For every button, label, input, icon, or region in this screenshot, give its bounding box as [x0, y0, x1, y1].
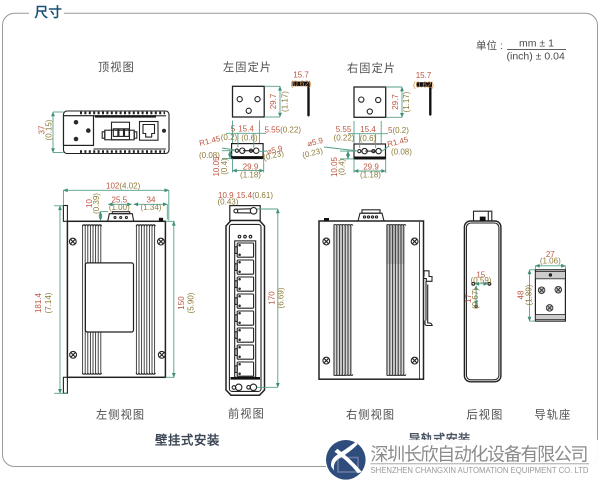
svg-text:右侧视图: 右侧视图 — [346, 408, 395, 422]
svg-text:R1.45: R1.45 — [198, 134, 221, 148]
svg-text:左侧视图: 左侧视图 — [96, 408, 145, 422]
svg-text:(0.22): (0.22) — [334, 133, 355, 142]
svg-text:左固定片: 左固定片 — [223, 60, 272, 74]
svg-text:深圳长欣自动化设备有限公司: 深圳长欣自动化设备有限公司 — [371, 445, 589, 465]
svg-text:(0.23): (0.23) — [301, 146, 324, 160]
svg-text:(1.17): (1.17) — [281, 91, 290, 112]
svg-text:尺寸: 尺寸 — [35, 4, 63, 20]
svg-text:29.7: 29.7 — [269, 93, 278, 109]
svg-text:右固定片: 右固定片 — [347, 61, 396, 75]
svg-text:导轨座: 导轨座 — [535, 408, 572, 422]
svg-text:(0.4): (0.4) — [338, 158, 347, 175]
svg-text:(6.69): (6.69) — [277, 287, 286, 308]
svg-text:(7.14): (7.14) — [44, 292, 53, 313]
svg-text:壁挂式安装: 壁挂式安装 — [155, 433, 220, 448]
svg-text:(0.15): (0.15) — [45, 119, 54, 140]
svg-text:(0.6): (0.6) — [241, 134, 258, 143]
svg-text:29.7: 29.7 — [391, 94, 400, 110]
svg-text:(5.90): (5.90) — [187, 292, 196, 313]
svg-text:(0.67): (0.67) — [471, 288, 480, 309]
svg-text:5.55(0.22): 5.55(0.22) — [265, 126, 302, 135]
svg-text:(0.62): (0.62) — [291, 80, 312, 89]
svg-text:15.4(0.61): 15.4(0.61) — [237, 191, 274, 200]
svg-text:(0.62): (0.62) — [413, 80, 434, 89]
svg-text:前视图: 前视图 — [228, 407, 265, 421]
svg-text:102(4.02): 102(4.02) — [106, 181, 141, 190]
svg-text:(1.06): (1.06) — [540, 257, 561, 266]
svg-text:mm ± 1: mm ± 1 — [519, 38, 554, 50]
svg-text:(0.39): (0.39) — [92, 193, 101, 214]
svg-text:后视图: 后视图 — [467, 408, 504, 422]
svg-text:15.7: 15.7 — [293, 71, 309, 80]
svg-text:15.7: 15.7 — [416, 71, 432, 80]
svg-text:181.4: 181.4 — [34, 292, 43, 313]
svg-text:(1.18): (1.18) — [360, 171, 381, 180]
svg-text:5(0.2): 5(0.2) — [388, 126, 409, 135]
svg-text:(inch) ± 0.04: (inch) ± 0.04 — [507, 50, 565, 62]
svg-text:(1.18): (1.18) — [240, 170, 261, 179]
svg-text:(0.2): (0.2) — [221, 133, 238, 142]
svg-text:15.4: 15.4 — [360, 125, 376, 134]
svg-text:150: 150 — [177, 296, 186, 310]
svg-text:170: 170 — [267, 291, 276, 305]
svg-text:SHENZHEN CHANGXIN AUTOMATION E: SHENZHEN CHANGXIN AUTOMATION EQUIPMENT C… — [371, 465, 589, 475]
svg-text:(0.4): (0.4) — [220, 158, 229, 175]
svg-text:单位 :: 单位 : — [476, 39, 503, 52]
svg-text:15.4: 15.4 — [238, 125, 254, 134]
svg-text:(1.17): (1.17) — [402, 91, 411, 112]
svg-text:(1.89): (1.89) — [525, 284, 534, 305]
svg-text:顶视图: 顶视图 — [98, 60, 135, 74]
svg-text:(0.08): (0.08) — [391, 148, 412, 157]
svg-text:(0.6): (0.6) — [360, 134, 377, 143]
svg-text:⌀5.9: ⌀5.9 — [306, 136, 324, 149]
